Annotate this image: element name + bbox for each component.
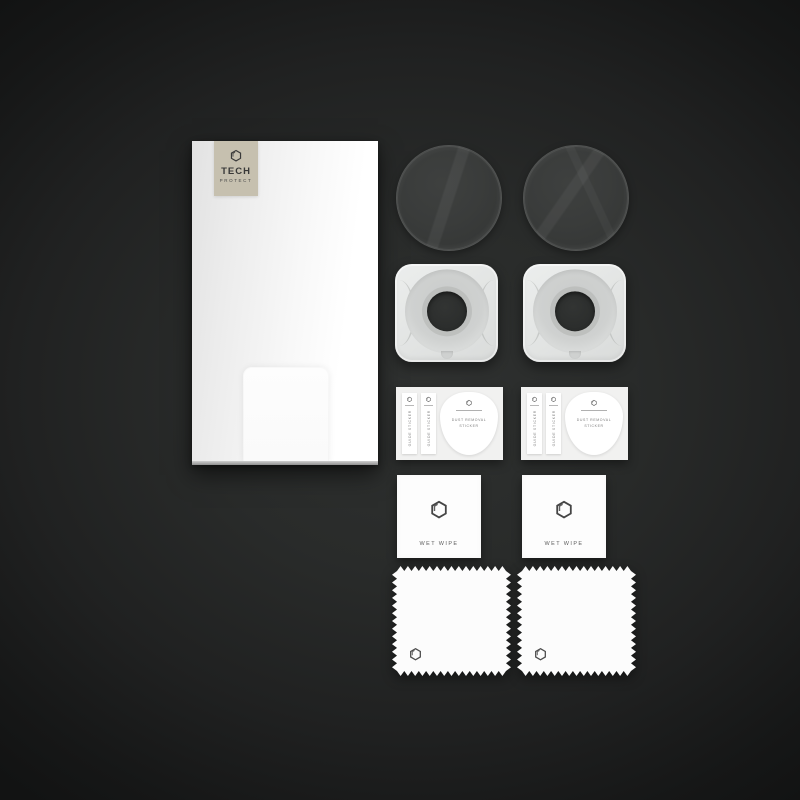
hexagon-icon (427, 498, 451, 522)
guide-sticker: GUIDE STICKER (421, 393, 436, 454)
dust-removal-sticker: DUST REMOVAL STICKER (440, 392, 498, 455)
applicator-ring (405, 269, 489, 353)
box-bottom-edge (192, 461, 378, 465)
divider-line (456, 410, 482, 411)
hexagon-icon (406, 396, 413, 403)
applicator-tab (441, 351, 453, 359)
guide-sticker-label: GUIDE STICKER (533, 410, 537, 446)
wet-wipe-packet: WET WIPE (397, 475, 481, 558)
hexagon-icon (552, 498, 576, 522)
scene-background: TECH PROTECT GUIDE STICKER (0, 0, 800, 800)
brand-name: TECH (221, 166, 251, 177)
sticker-sheet: GUIDE STICKER GUIDE STICKER DUST REMOVAL… (521, 387, 628, 460)
brand-subname: PROTECT (220, 178, 253, 183)
dust-removal-sticker: DUST REMOVAL STICKER (565, 392, 623, 455)
applicator-tray (395, 264, 498, 362)
dust-removal-label-line2: STICKER (584, 424, 603, 428)
tempered-glass-disc (396, 145, 502, 251)
applicator-hole (427, 291, 467, 331)
guide-sticker-label: GUIDE STICKER (408, 410, 412, 446)
dust-removal-label-line1: DUST REMOVAL (577, 418, 612, 422)
tempered-glass-disc (523, 145, 629, 251)
sticker-sheet: GUIDE STICKER GUIDE STICKER DUST REMOVAL… (396, 387, 503, 460)
applicator-ring (533, 269, 617, 353)
hexagon-icon (228, 148, 244, 164)
guide-sticker-label: GUIDE STICKER (427, 410, 431, 446)
guide-sticker: GUIDE STICKER (527, 393, 542, 454)
product-box: TECH PROTECT (192, 141, 378, 465)
brand-label: TECH PROTECT (214, 141, 258, 196)
divider-line (530, 405, 539, 406)
hexagon-icon (590, 399, 598, 407)
divider-line (581, 410, 607, 411)
hexagon-icon (465, 399, 473, 407)
applicator-tab (569, 351, 581, 359)
microfiber-cloth (517, 566, 636, 676)
guide-sticker-label: GUIDE STICKER (552, 410, 556, 446)
wet-wipe-label: WET WIPE (522, 541, 606, 547)
microfiber-cloth (392, 566, 511, 676)
dust-removal-label-line1: DUST REMOVAL (452, 418, 487, 422)
box-window-sticker (243, 367, 329, 462)
hexagon-icon (531, 396, 538, 403)
hexagon-icon (407, 646, 424, 663)
divider-line (549, 405, 558, 406)
hexagon-icon (532, 646, 549, 663)
dust-removal-label: DUST REMOVAL STICKER (452, 418, 487, 429)
guide-sticker: GUIDE STICKER (546, 393, 561, 454)
applicator-hole (555, 291, 595, 331)
applicator-tray (523, 264, 626, 362)
dust-removal-label-line2: STICKER (459, 424, 478, 428)
guide-sticker: GUIDE STICKER (402, 393, 417, 454)
hexagon-icon (425, 396, 432, 403)
divider-line (405, 405, 414, 406)
dust-removal-label: DUST REMOVAL STICKER (577, 418, 612, 429)
wet-wipe-packet: WET WIPE (522, 475, 606, 558)
hexagon-icon (550, 396, 557, 403)
divider-line (424, 405, 433, 406)
wet-wipe-label: WET WIPE (397, 541, 481, 547)
